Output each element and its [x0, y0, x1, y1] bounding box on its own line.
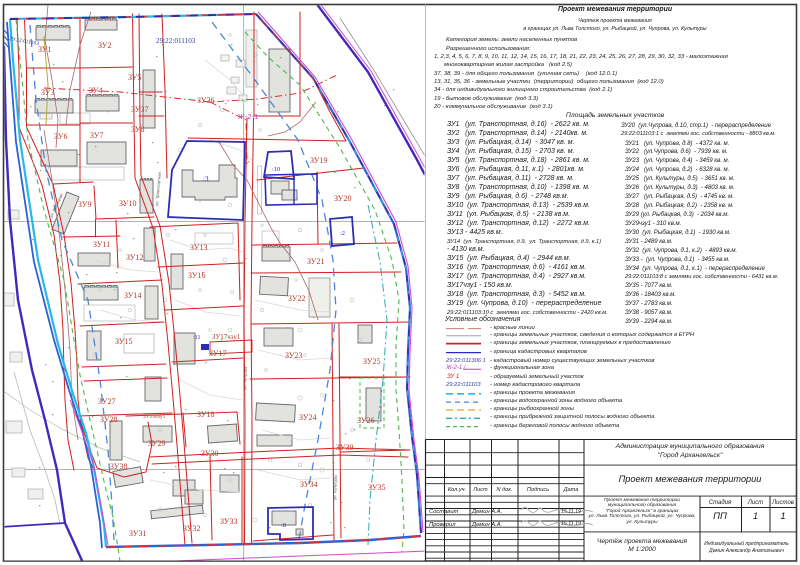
svg-text:ЗУ9: ЗУ9: [78, 200, 91, 209]
svg-text:ЗУ20: ЗУ20: [334, 194, 351, 203]
svg-text:ЗУ1: ЗУ1: [38, 45, 51, 54]
svg-text:ул. Чупрова: ул. Чупрова: [242, 366, 248, 390]
svg-text:ЗУ11: ЗУ11: [93, 240, 110, 249]
svg-text:ЗУ6: ЗУ6: [54, 132, 67, 141]
svg-text:ЗУ8: ЗУ8: [131, 125, 144, 134]
svg-text:ЗУ12: ЗУ12: [126, 253, 143, 262]
svg-text:ЗУ29: ЗУ29: [148, 439, 165, 448]
svg-text:ЗУ14: ЗУ14: [124, 291, 141, 300]
svg-text:ЗУ18: ЗУ18: [197, 410, 214, 419]
svg-text::2: :2: [340, 230, 345, 237]
svg-text:ЗУ17: ЗУ17: [209, 349, 226, 358]
svg-text:ЗУ32: ЗУ32: [183, 524, 200, 533]
svg-text:ЗУ17чзу1: ЗУ17чзу1: [212, 333, 241, 341]
svg-text:ЗУ38: ЗУ38: [110, 462, 127, 471]
svg-text:ЗУ19: ЗУ19: [310, 156, 327, 165]
svg-text::3: :3: [203, 175, 209, 183]
svg-text:ЗУ30: ЗУ30: [201, 449, 218, 458]
svg-text::11: :11: [193, 335, 200, 341]
svg-text:ЗУ37: ЗУ37: [131, 105, 148, 114]
svg-text:ул. Культуры: ул. Культуры: [332, 475, 338, 500]
svg-text:ЗУ25: ЗУ25: [363, 357, 380, 366]
svg-text:ЗУ39: ЗУ39: [336, 443, 353, 452]
svg-text:ЗУ4: ЗУ4: [89, 86, 102, 95]
svg-text:ЗУ26: ЗУ26: [357, 416, 374, 425]
svg-text:ЗУ23: ЗУ23: [285, 351, 302, 360]
svg-text:ЗУ22: ЗУ22: [288, 294, 305, 303]
svg-text:ЗУ10: ЗУ10: [119, 199, 136, 208]
svg-text::8: :8: [281, 522, 286, 529]
svg-text:ЗУ35: ЗУ35: [368, 483, 385, 492]
svg-text:ЗУ27: ЗУ27: [98, 397, 115, 406]
svg-text::10: :10: [272, 166, 280, 173]
svg-text:ЗУ3: ЗУ3: [41, 88, 54, 97]
svg-text:ЗУ29чзу1: ЗУ29чзу1: [143, 414, 166, 420]
svg-text:29:22:011103: 29:22:011103: [156, 37, 196, 45]
svg-text:ЗУ36: ЗУ36: [197, 96, 214, 105]
svg-text:ЗУ34: ЗУ34: [300, 480, 317, 489]
svg-text:ЗУ33: ЗУ33: [220, 517, 237, 526]
svg-text:ЗУ16: ЗУ16: [188, 271, 205, 280]
svg-text:ЗУ5: ЗУ5: [128, 73, 141, 82]
svg-text:ЗУ7: ЗУ7: [90, 131, 103, 140]
svg-text:ЗУ28: ЗУ28: [100, 415, 117, 424]
svg-text:ЗУ31: ЗУ31: [129, 529, 146, 538]
svg-text:ЗУ2: ЗУ2: [98, 41, 111, 50]
svg-text:Ж-2-1: Ж-2-1: [238, 112, 258, 121]
svg-text:ЗУ13: ЗУ13: [190, 243, 207, 252]
svg-text:ЗУ24: ЗУ24: [299, 413, 316, 422]
svg-text:ЗУ21: ЗУ21: [307, 257, 324, 266]
svg-text:ЗУ15: ЗУ15: [115, 337, 132, 346]
